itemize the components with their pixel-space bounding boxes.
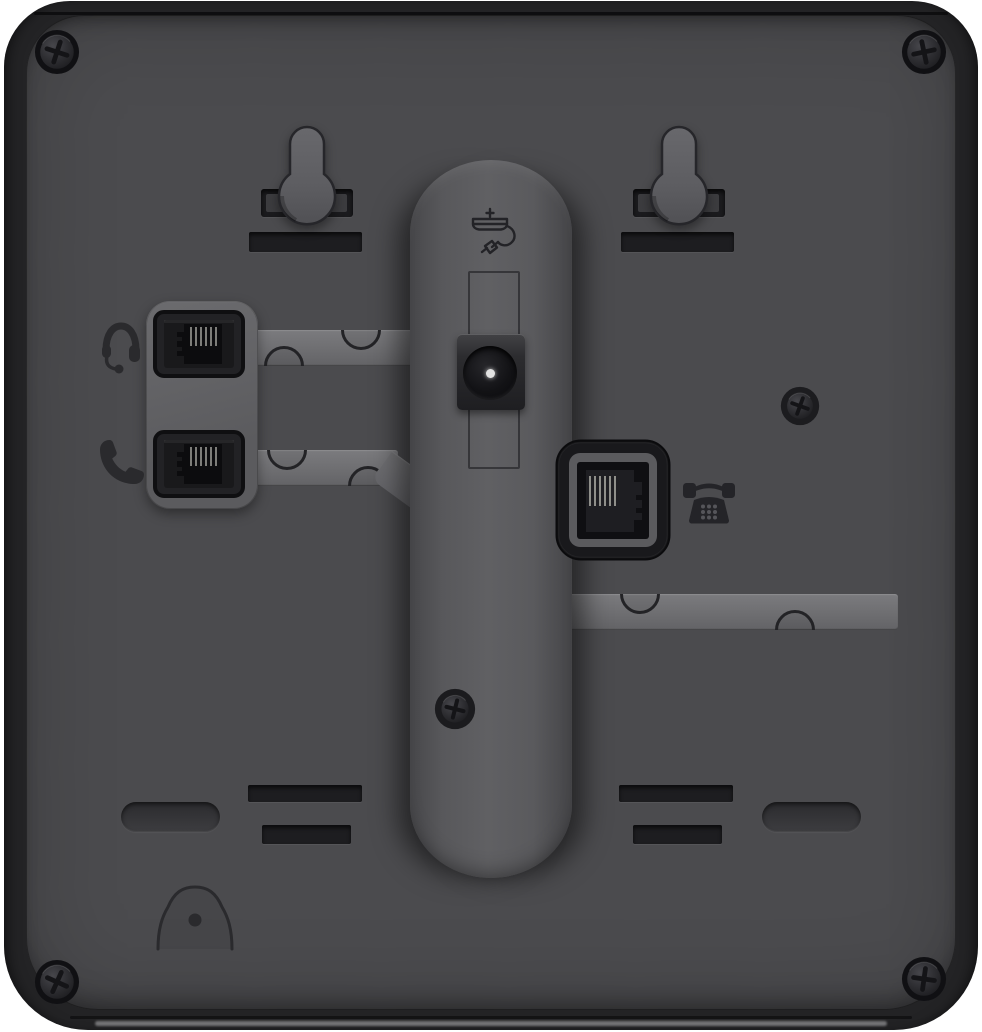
screw-top-left xyxy=(34,29,80,75)
wall-mount-lower-slot-right xyxy=(621,232,734,252)
bottom-edge-highlight xyxy=(95,1021,887,1026)
handset-icon xyxy=(97,437,147,487)
headset-port xyxy=(153,310,245,378)
cable-channel-handset xyxy=(242,450,398,486)
foot-recess-left xyxy=(121,802,220,832)
power-adapter-icon xyxy=(461,206,519,270)
foot-recess-right xyxy=(762,802,861,832)
cable-notch xyxy=(264,346,304,366)
cable-notch xyxy=(620,594,660,614)
wall-mount-lower-slot-left xyxy=(249,232,362,252)
screw-bottom-left xyxy=(34,959,80,1005)
cable-channel-line xyxy=(548,594,898,630)
wall-mount-keyhole-left xyxy=(257,124,357,226)
screw-bottom-right xyxy=(901,956,947,1002)
power-jack-pin xyxy=(486,369,495,378)
headset-icon xyxy=(97,316,145,374)
vent-slot-right-bottom xyxy=(633,825,722,844)
cable-notch xyxy=(341,330,381,350)
cable-notch xyxy=(775,610,815,630)
photo-canvas xyxy=(0,0,982,1032)
line-port xyxy=(554,438,672,562)
vent-slot-left-bottom xyxy=(262,825,351,844)
cable-notch xyxy=(267,450,307,470)
vent-slot-left-top xyxy=(248,785,362,802)
bottom-edge-seam xyxy=(70,1016,912,1019)
screw-top-right xyxy=(901,29,947,75)
screw-panel-right xyxy=(780,386,820,426)
wall-mount-keyhole-right xyxy=(629,124,729,226)
screw-stand-column xyxy=(434,688,476,730)
phone-icon xyxy=(682,480,736,524)
wall-hook-emboss xyxy=(152,877,238,953)
vent-slot-right-top xyxy=(619,785,733,802)
top-edge-seam xyxy=(34,12,948,15)
handset-port xyxy=(153,430,245,498)
